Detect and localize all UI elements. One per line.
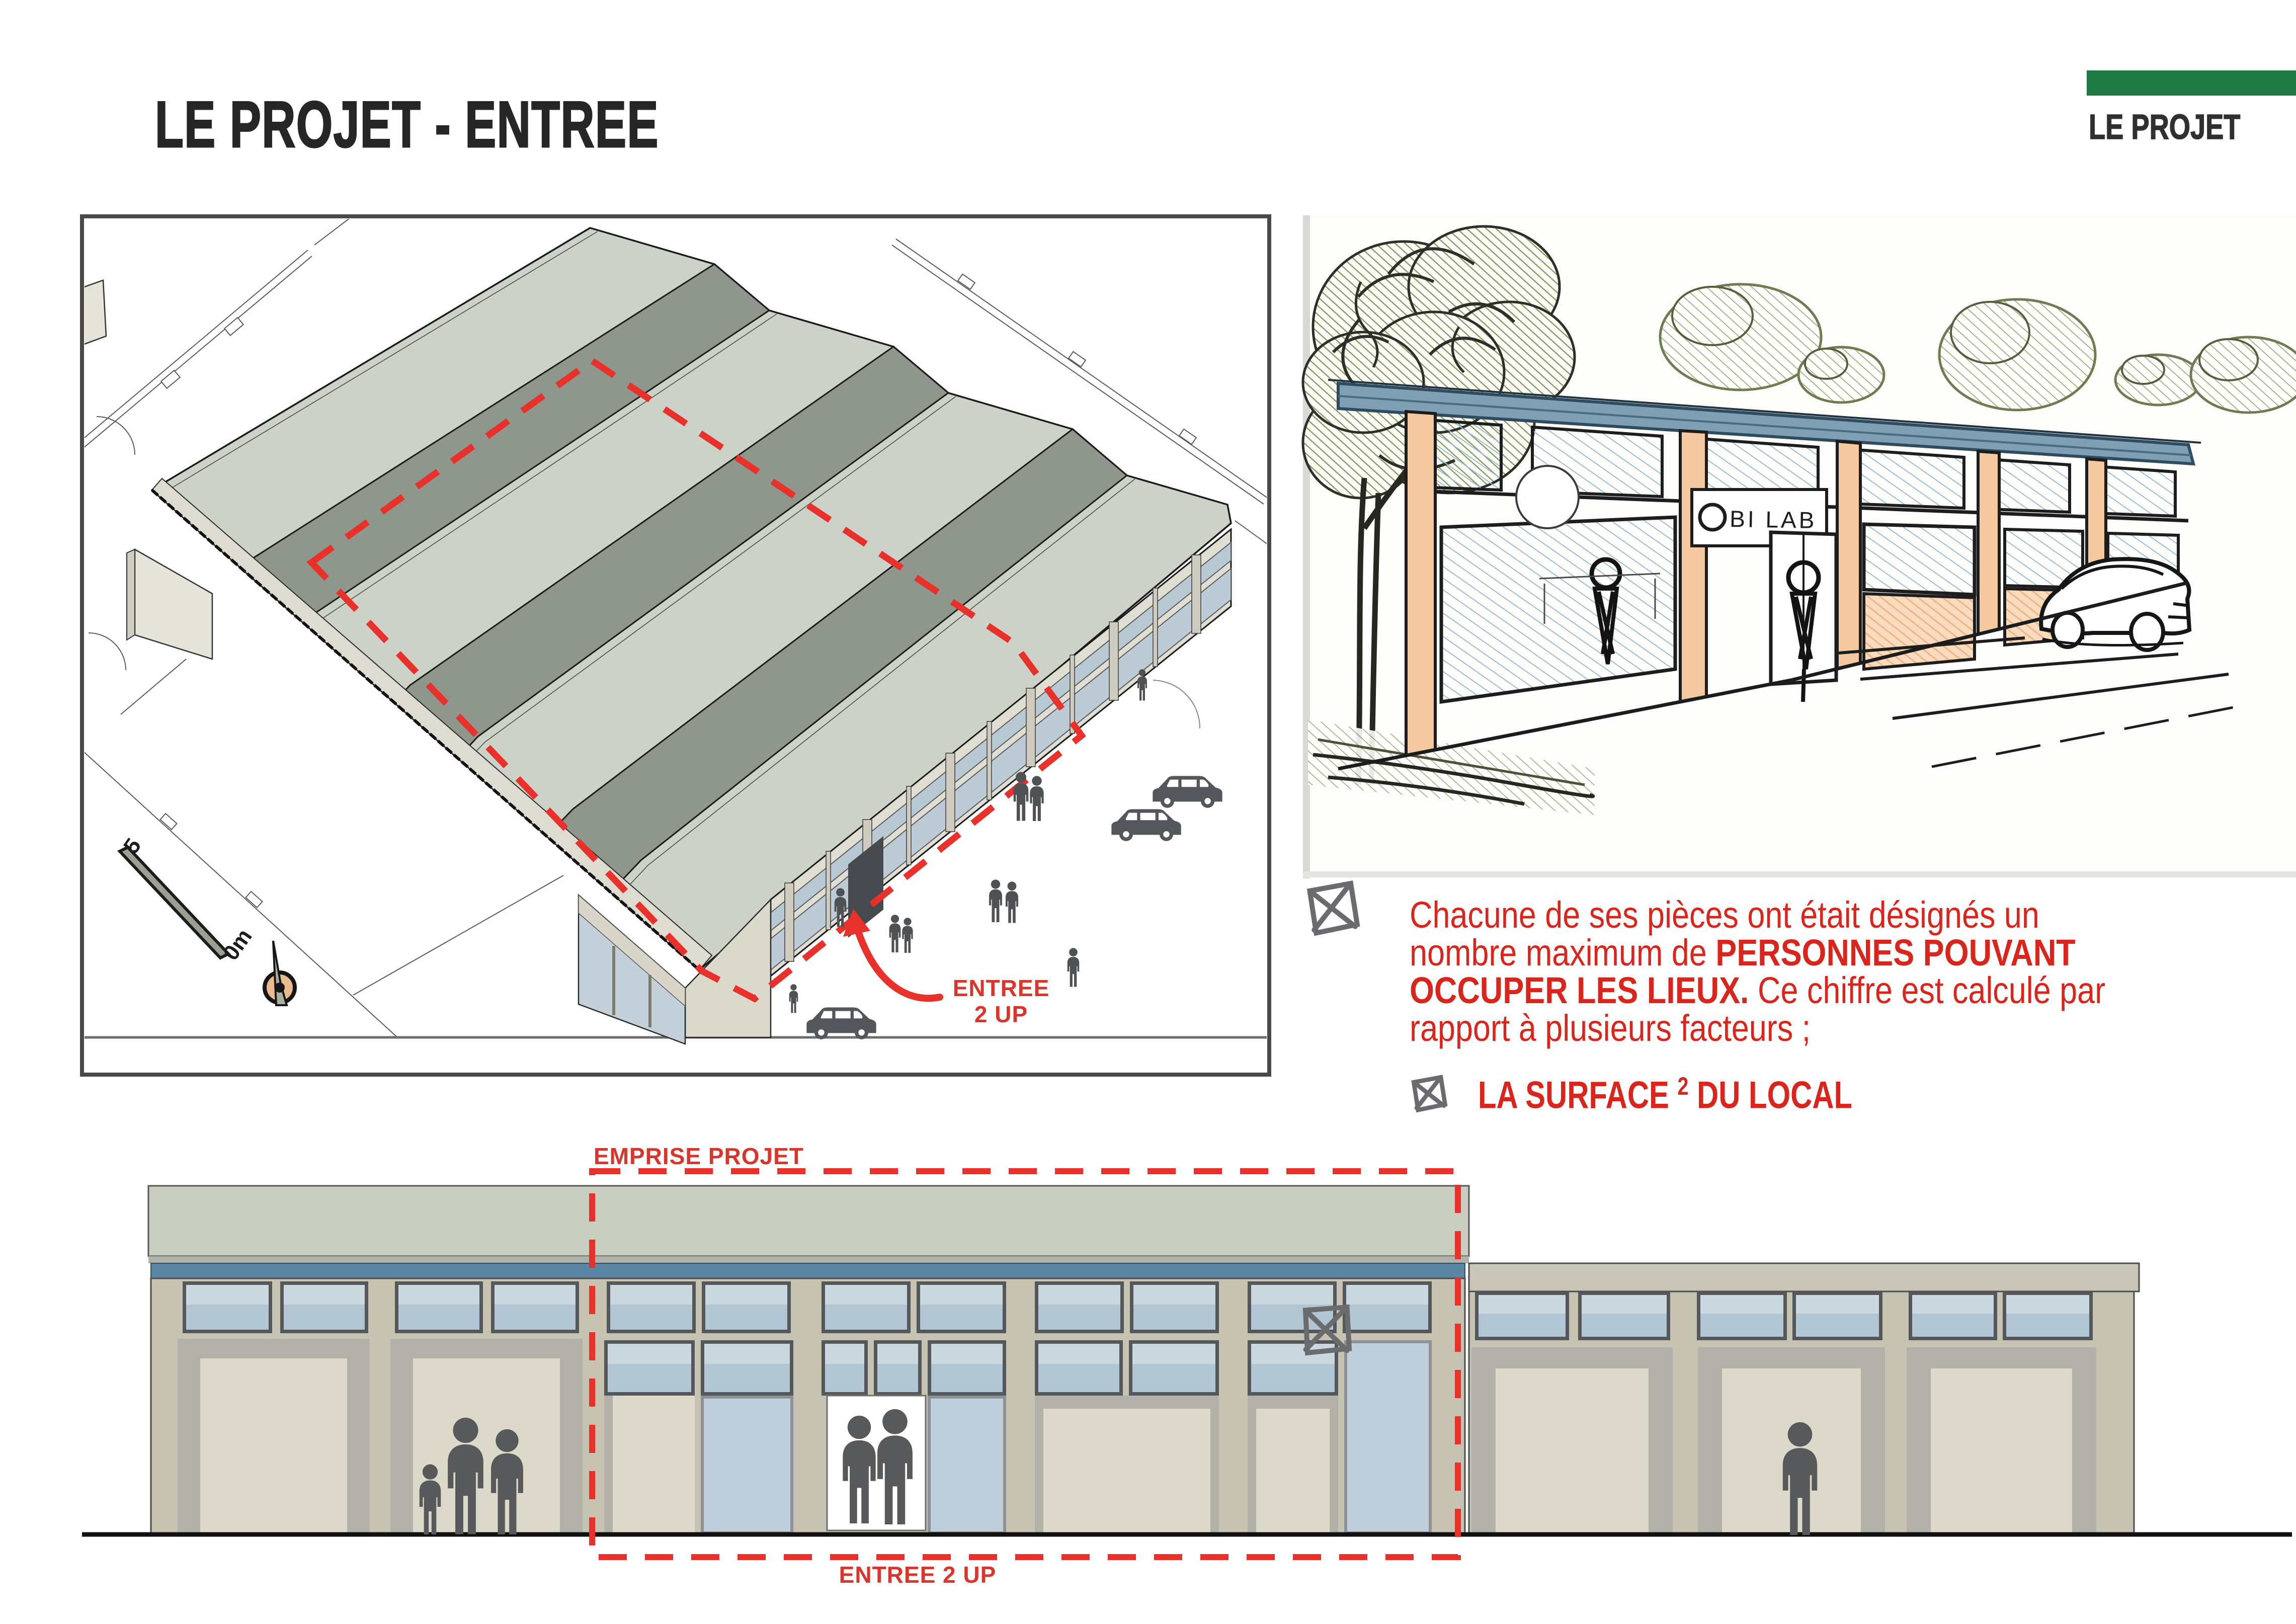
svg-text:ENTREE 2 UP: ENTREE 2 UP: [839, 1562, 997, 1588]
svg-text:2 UP: 2 UP: [974, 1001, 1028, 1027]
svg-text:EMPRISE PROJET: EMPRISE PROJET: [594, 1143, 804, 1169]
svg-text:BI LAB: BI LAB: [1730, 506, 1817, 533]
svg-text:ENTREE: ENTREE: [953, 975, 1050, 1001]
